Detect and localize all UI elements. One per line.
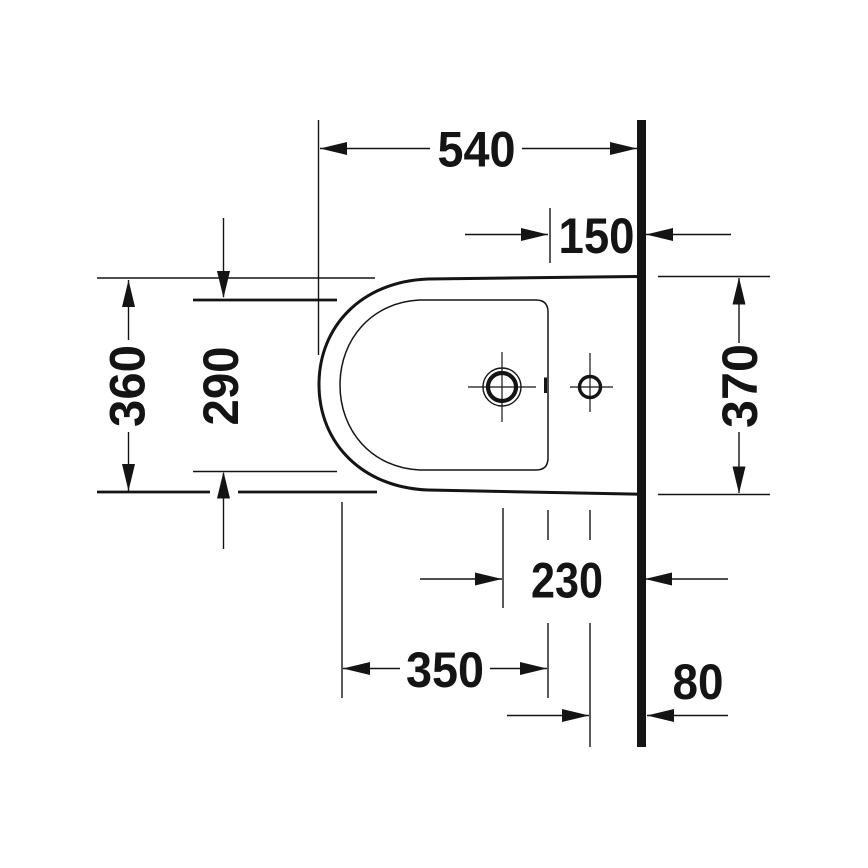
dim-outlet-center-to-wall-label: 80 xyxy=(673,654,724,710)
arrowhead-up xyxy=(217,472,230,499)
dim-overall-length-label: 540 xyxy=(438,122,516,178)
dim-wall-outer-width: 370 xyxy=(658,277,770,495)
arrowhead-left xyxy=(645,573,672,586)
arrowhead-up xyxy=(122,280,135,307)
arrowhead-right xyxy=(610,142,637,155)
dim-basin-inner-width: 290 xyxy=(193,218,337,549)
dim-tap-center-to-wall-label: 230 xyxy=(531,553,603,609)
arrowhead-left xyxy=(646,228,673,241)
arrowhead-right xyxy=(475,573,502,586)
arrowhead-right xyxy=(562,709,589,722)
dim-outlet-center-to-wall: 80 xyxy=(507,654,728,722)
arrowhead-down xyxy=(122,464,135,491)
arrowhead-right xyxy=(521,228,548,241)
arrowhead-down xyxy=(733,467,746,494)
bidet-outer-outline xyxy=(319,277,641,495)
arrowhead-up xyxy=(733,278,746,305)
dim-tap-center-offset: 150 xyxy=(465,208,731,264)
wall-line xyxy=(637,120,646,747)
dim-tap-center-to-wall: 230 xyxy=(420,508,728,609)
dim-basin-inner-width-label: 290 xyxy=(193,347,249,426)
dim-tap-center-offset-label: 150 xyxy=(559,208,635,264)
arrowhead-down xyxy=(217,271,230,298)
dim-basin-inner-length: 350 xyxy=(342,502,547,698)
dim-front-outer-width-label: 360 xyxy=(100,345,156,427)
bidet-body xyxy=(319,277,641,495)
arrowhead-left xyxy=(343,662,370,675)
technical-drawing-canvas: 540 150 360 290 370 xyxy=(0,0,868,868)
arrowhead-left xyxy=(320,142,347,155)
arrowhead-left xyxy=(647,709,674,722)
dim-basin-inner-length-label: 350 xyxy=(406,642,484,698)
bidet-dimension-diagram: 540 150 360 290 370 xyxy=(0,0,868,868)
dim-wall-outer-width-label: 370 xyxy=(712,344,768,428)
arrowhead-right xyxy=(520,662,547,675)
